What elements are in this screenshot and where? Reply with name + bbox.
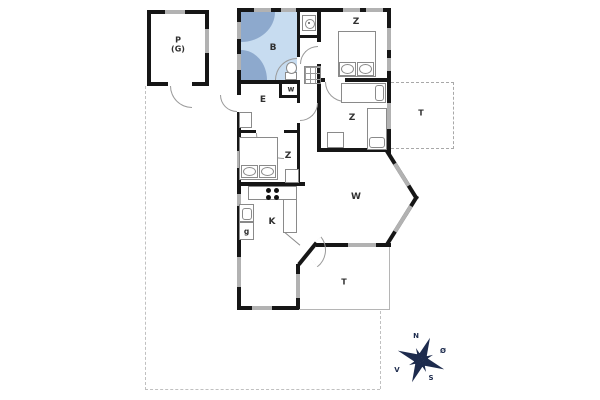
window-segment [387,28,391,50]
pillow [369,137,385,148]
kitchen-counter [248,186,297,200]
kitchen-counter-edge [284,232,300,246]
door-arc [300,103,318,121]
closet [327,132,344,148]
compass-north-label: N [413,332,419,340]
room-label-bathroom: B [270,43,277,53]
wall-segment [237,80,300,84]
stove-icon [274,188,279,193]
compass-west-label: V [394,366,399,374]
window-segment [343,8,360,12]
door-arc [220,95,237,112]
room-label-bedroom-left: Z [285,151,292,161]
pillow [259,165,276,178]
window-segment [165,10,185,14]
window-segment [237,54,241,70]
window-segment [393,163,410,187]
room-label-terrace-south: T [341,278,346,287]
floor-plan: P (G) [0,0,600,400]
room-label-kitchen: K [269,217,276,227]
stove-icon [266,195,271,200]
property-boundary-south [145,389,380,391]
compass-rose-icon [392,332,450,388]
stairs-icon [304,66,321,84]
room-label-appliance: g [244,227,249,236]
window-segment [393,205,412,233]
cabinet [239,112,252,128]
window-segment [237,257,241,287]
window-segment [237,22,241,39]
wall-segment [147,82,168,86]
pillow [339,62,356,76]
room-label-living: W [351,192,361,202]
wall-segment [297,8,300,57]
property-boundary-east [380,311,382,389]
window-segment [366,8,383,12]
window-segment [281,8,296,12]
wall-segment [385,149,419,200]
property-boundary-west [145,86,147,390]
wall-segment [192,82,209,86]
wall-segment [284,130,300,133]
wall-segment [317,8,321,42]
washing-machine-icon [302,15,316,31]
window-segment [387,58,391,71]
pillow [375,85,384,101]
room-label-garage-sub: (G) [171,45,185,54]
room-label-terrace-east: T [418,109,423,118]
room-label-wc: w [288,85,295,94]
pillow [357,62,374,76]
door-arc [300,46,318,64]
pillow [241,165,258,178]
wall-segment [345,78,391,82]
wall-segment [147,10,151,86]
room-label-bedroom-top: Z [353,17,360,27]
compass-south-label: S [428,374,433,382]
window-segment [254,8,271,12]
door-arc [170,86,192,108]
wall-segment [300,35,317,38]
sink-icon [239,204,254,222]
window-segment [252,306,272,310]
compass-east-label: Ø [440,347,446,355]
wall-segment [297,80,300,103]
closet [285,169,299,183]
stove-icon [266,188,271,193]
room-label-bedroom-mid: Z [349,113,356,123]
kitchen-counter [283,199,297,233]
wall-segment [237,130,256,133]
stove-icon [274,195,279,200]
window-segment [205,29,209,53]
wall-segment [317,82,321,152]
room-label-garage: P [175,36,181,45]
appliance-box: g [239,222,254,240]
room-label-entry: E [260,95,266,105]
wall-segment [385,195,419,246]
